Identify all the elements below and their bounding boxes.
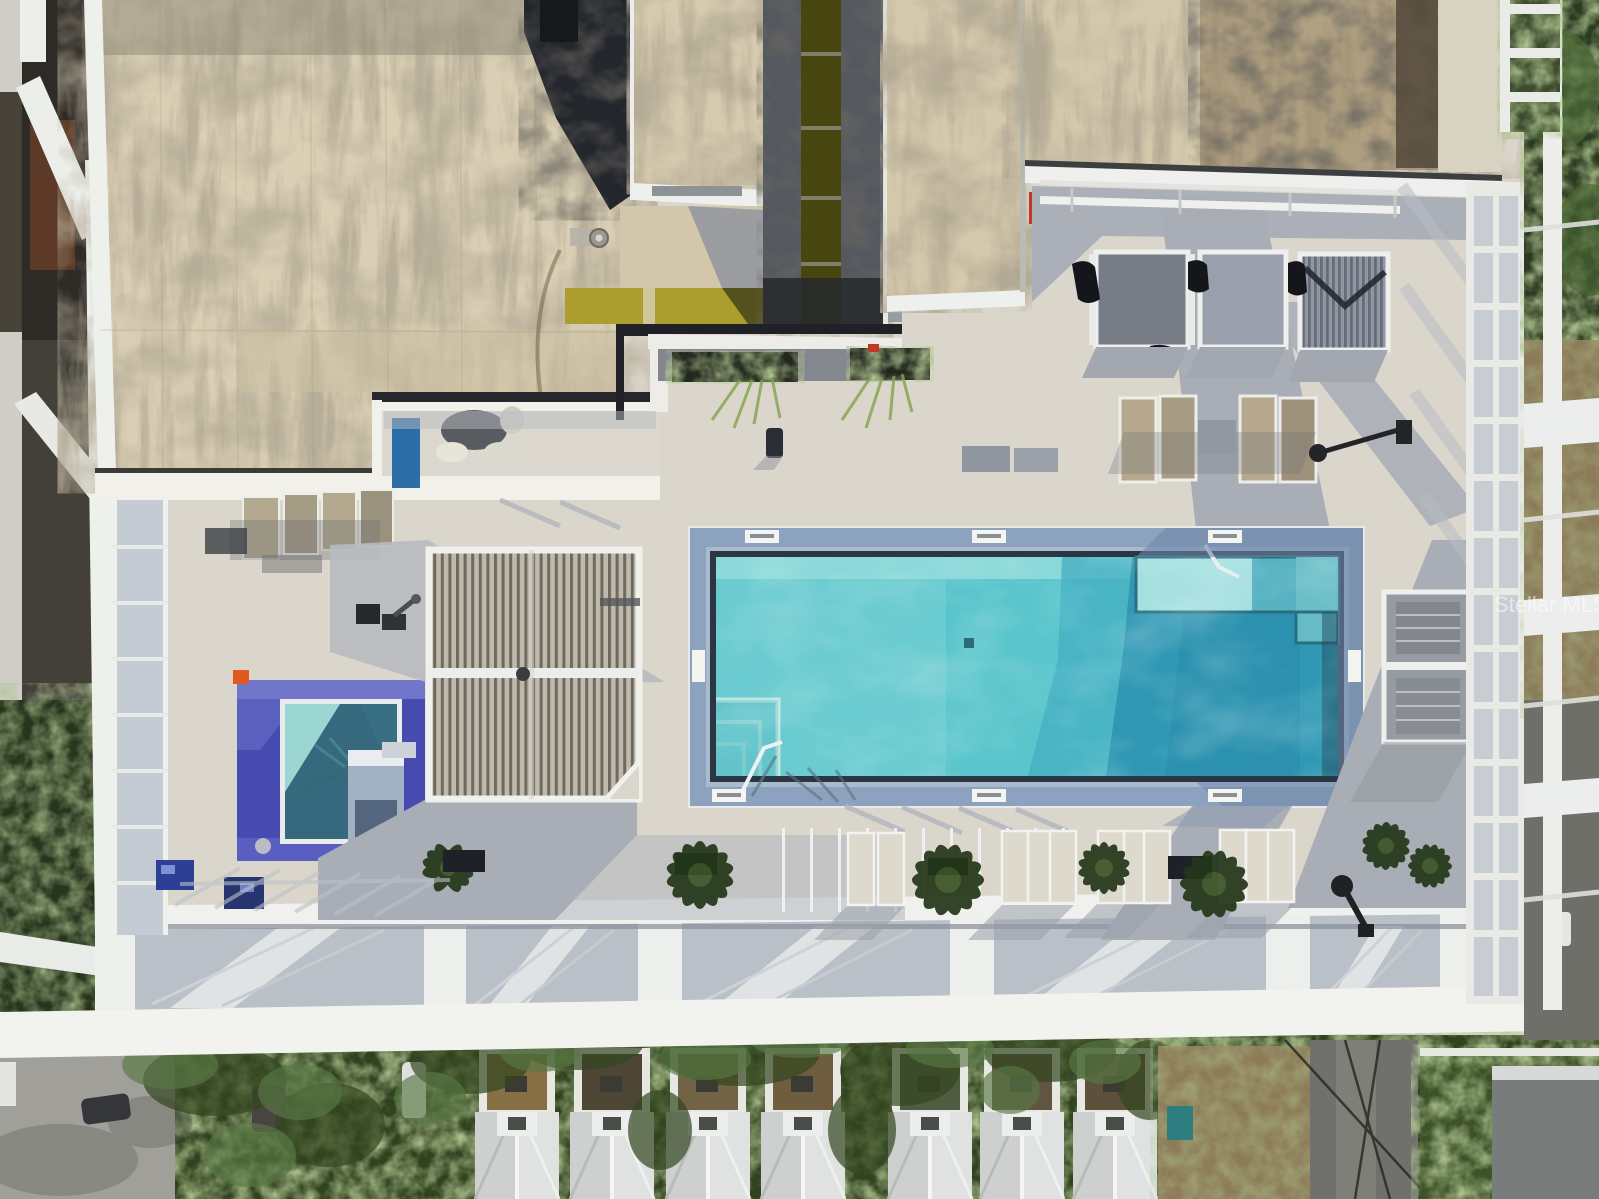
svg-text:Stellar MLS: Stellar MLS: [1494, 592, 1599, 617]
